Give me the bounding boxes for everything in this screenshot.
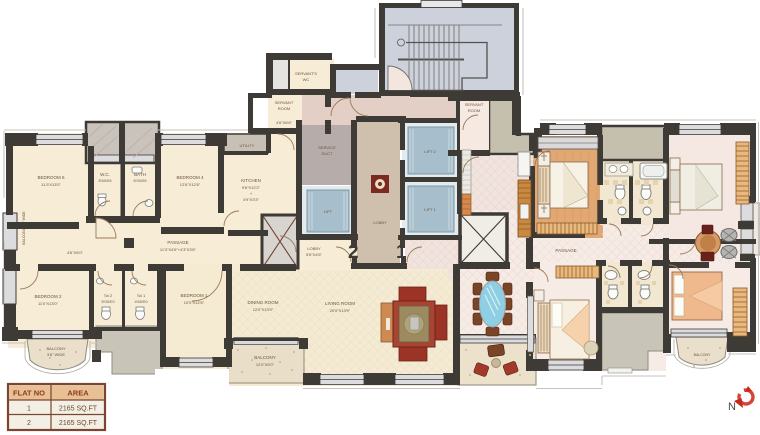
svg-text:12'6"X12'6": 12'6"X12'6" [180,182,201,187]
svg-text:4'6X8'0: 4'6X8'0 [134,299,148,304]
svg-text:LIFT: LIFT [324,209,333,214]
svg-text:9'6"X12'2": 9'6"X12'2" [242,185,261,190]
svg-text:5'6"X4'6": 5'6"X4'6" [306,252,323,257]
svg-text:20'0"X13'9": 20'0"X13'9" [330,308,351,313]
svg-text:11'3"X4'6"+4'3"X3'6": 11'3"X4'6"+4'3"X3'6" [160,247,197,252]
svg-text:LIFT 2: LIFT 2 [424,149,436,154]
svg-text:2: 2 [348,242,359,263]
svg-text:4'6"X6'6": 4'6"X6'6" [276,120,293,125]
svg-text:11.5'X13'0": 11.5'X13'0" [41,182,61,187]
svg-text:Toi 1: Toi 1 [137,293,146,298]
svg-text:12'0"X13'9": 12'0"X13'9" [253,307,274,312]
svg-text:PASSAGE: PASSAGE [167,240,188,245]
svg-text:UTILITY: UTILITY [240,143,255,148]
svg-text:5'0X8'0: 5'0X8'0 [101,299,115,304]
svg-text:LIVING ROOM: LIVING ROOM [325,301,355,306]
svg-text:PASSAGE: PASSAGE [555,248,576,253]
svg-text:1: 1 [27,406,31,413]
svg-text:DINING ROOM: DINING ROOM [248,300,279,305]
svg-text:BALCONY: BALCONY [694,353,711,357]
svg-text:BEDROOM 2: BEDROOM 2 [34,294,62,299]
svg-text:SERVANT: SERVANT [275,100,294,105]
svg-text:ROOM: ROOM [468,108,480,113]
svg-text:AREA: AREA [67,389,89,398]
svg-text:1: 1 [396,242,407,263]
svg-text:Toi 2: Toi 2 [104,293,113,298]
svg-text:LIFT 1: LIFT 1 [424,207,436,212]
svg-text:BEDROOM 4: BEDROOM 4 [176,175,204,180]
svg-text:11'0"X13'0": 11'0"X13'0" [38,301,59,306]
svg-text:BEDROOM 1: BEDROOM 1 [180,293,208,298]
svg-text:FLAT NO: FLAT NO [13,389,45,398]
svg-text:12'0"X5'0": 12'0"X5'0" [256,362,275,367]
svg-text:LOBBY: LOBBY [373,220,387,225]
svg-text:N: N [728,401,736,413]
svg-text:SERVICE: SERVICE [318,145,336,150]
svg-text:BEDROOM 5: BEDROOM 5 [37,175,65,180]
svg-text:6'0X8'6: 6'0X8'6 [133,178,147,183]
svg-text:LOBBY: LOBBY [307,246,321,251]
svg-text:BALCONY: BALCONY [46,346,65,351]
svg-text:10'0"X12'6": 10'0"X12'6" [184,300,205,305]
svg-text:3'6" WIDE: 3'6" WIDE [47,352,66,357]
svg-text:5'6X8'6: 5'6X8'6 [98,178,112,183]
svg-text:W.C.: W.C. [100,172,110,177]
svg-text:BATH: BATH [134,172,146,177]
svg-text:2165 SQ.FT: 2165 SQ.FT [59,406,98,413]
svg-text:4'6"X6'0": 4'6"X6'0" [67,250,84,255]
svg-text:ROOM: ROOM [278,106,290,111]
svg-text:4'9"X3'3": 4'9"X3'3" [243,197,260,202]
svg-text:BALCONY: BALCONY [254,355,276,360]
svg-text:WC: WC [303,77,310,82]
svg-text:DUCT: DUCT [321,151,333,156]
svg-text:KITCHEN: KITCHEN [241,178,261,183]
svg-text:2: 2 [27,420,31,427]
svg-text:SERVANT'S: SERVANT'S [295,71,317,76]
svg-text:SERVANT: SERVANT [465,102,484,107]
svg-text:2165 SQ.FT: 2165 SQ.FT [59,420,98,427]
